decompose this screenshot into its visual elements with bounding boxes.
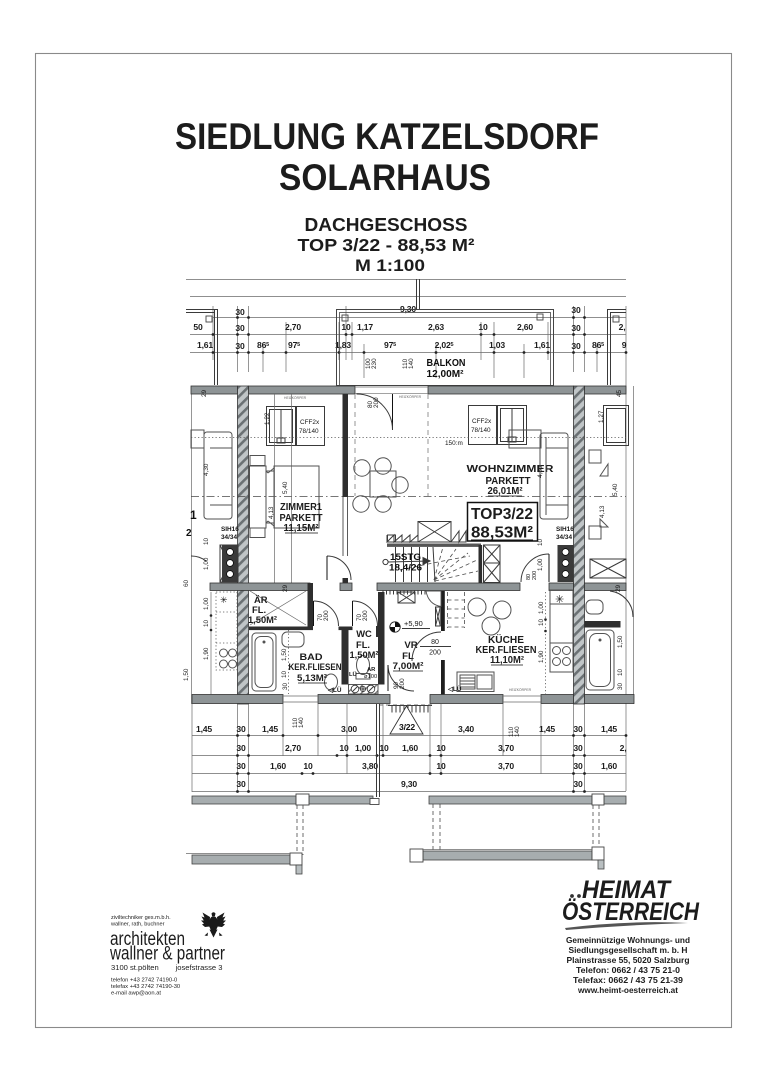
svg-text:HEIZKÖRPER: HEIZKÖRPER — [284, 396, 307, 400]
svg-text:KER.FLIESEN: KER.FLIESEN — [289, 662, 342, 673]
svg-text:Gemeinnützige Wohnungs- und: Gemeinnützige Wohnungs- und — [566, 935, 690, 945]
svg-text:1,03: 1,03 — [489, 340, 505, 350]
svg-text:www.heimt-oesterreich.at: www.heimt-oesterreich.at — [577, 985, 678, 995]
svg-text:e-mail awp@aon.at: e-mail awp@aon.at — [111, 991, 161, 997]
svg-text:10: 10 — [339, 743, 349, 753]
svg-text:1,50: 1,50 — [183, 668, 190, 681]
svg-text:1,90: 1,90 — [538, 650, 545, 663]
svg-text:2,63: 2,63 — [428, 322, 444, 332]
svg-text:2,: 2, — [619, 322, 626, 332]
svg-text:150:m: 150:m — [445, 440, 463, 447]
svg-text:1,00: 1,00 — [537, 558, 544, 571]
svg-text:wallner & partner: wallner & partner — [109, 944, 225, 965]
svg-text:3100 st.pölten josefst: 3100 st.pölten josefstrasse 3 — [111, 963, 222, 972]
svg-text:30: 30 — [235, 323, 245, 333]
svg-text:2,60: 2,60 — [517, 322, 533, 332]
svg-text:BALKON: BALKON — [427, 358, 466, 369]
svg-text:78/140: 78/140 — [471, 427, 491, 434]
svg-text:VR: VR — [404, 640, 417, 651]
svg-text:80: 80 — [431, 639, 439, 646]
svg-text:ÖSTERREICH: ÖSTERREICH — [562, 897, 700, 926]
svg-text:Telefax: 0662 / 43 75 21-39: Telefax: 0662 / 43 75 21-39 — [573, 975, 683, 985]
svg-text:11,10M²: 11,10M² — [490, 655, 525, 666]
svg-text:WC: WC — [356, 628, 372, 639]
svg-text:140: 140 — [514, 726, 521, 737]
svg-text:AR: AR — [367, 667, 376, 673]
svg-text:30: 30 — [617, 682, 624, 690]
svg-text:30: 30 — [571, 305, 581, 315]
svg-text:10: 10 — [436, 743, 446, 753]
svg-text:HEIZKÖRPER: HEIZKÖRPER — [509, 688, 532, 692]
svg-text:3,70: 3,70 — [498, 743, 514, 753]
svg-text:ø100: ø100 — [364, 674, 377, 680]
svg-text:4,30: 4,30 — [537, 465, 544, 478]
svg-text:3,80: 3,80 — [362, 761, 378, 771]
svg-text:10: 10 — [203, 537, 210, 545]
svg-text:10: 10 — [341, 322, 351, 332]
svg-text:1,17: 1,17 — [357, 322, 373, 332]
svg-text:1,45: 1,45 — [539, 724, 555, 734]
svg-text:4,30: 4,30 — [203, 463, 210, 476]
svg-text:CFF2x: CFF2x — [472, 418, 492, 425]
svg-text:9,30: 9,30 — [401, 779, 417, 789]
svg-text:140: 140 — [298, 717, 305, 728]
svg-text:200: 200 — [429, 650, 441, 657]
svg-text:30: 30 — [282, 682, 289, 690]
svg-text:200: 200 — [373, 397, 380, 408]
svg-text:30: 30 — [571, 341, 581, 351]
svg-text:M 1:100: M 1:100 — [355, 256, 425, 275]
svg-text:7,00M²: 7,00M² — [393, 661, 424, 672]
svg-text:CFF2x: CFF2x — [300, 419, 320, 426]
svg-text:1,50: 1,50 — [617, 635, 624, 648]
svg-text:1,00: 1,00 — [355, 743, 371, 753]
svg-text:1,22: 1,22 — [264, 412, 271, 425]
svg-text:30: 30 — [235, 307, 245, 317]
svg-text:10: 10 — [478, 322, 488, 332]
svg-text:1,50: 1,50 — [281, 648, 288, 661]
svg-text:30: 30 — [573, 743, 583, 753]
svg-text:3,70: 3,70 — [498, 761, 514, 771]
svg-text:2,: 2, — [620, 743, 627, 753]
svg-text:140: 140 — [408, 358, 415, 369]
svg-text:5,40: 5,40 — [282, 481, 289, 494]
svg-text:30: 30 — [571, 323, 581, 333]
svg-text:200: 200 — [362, 610, 369, 621]
svg-text:◁LÜ: ◁LÜ — [447, 684, 462, 693]
svg-text:30: 30 — [573, 761, 583, 771]
svg-text:Siedlungsgesellschaft m. b. H: Siedlungsgesellschaft m. b. H — [569, 945, 688, 955]
svg-text:+5,90: +5,90 — [404, 619, 423, 628]
svg-text:1,60: 1,60 — [601, 761, 617, 771]
svg-text:30: 30 — [573, 779, 583, 789]
svg-text:10: 10 — [538, 618, 545, 626]
svg-text:10: 10 — [379, 743, 389, 753]
svg-text:1,83: 1,83 — [335, 340, 351, 350]
svg-text:10: 10 — [281, 670, 288, 678]
svg-text:2,70: 2,70 — [285, 322, 301, 332]
svg-text:200: 200 — [399, 678, 406, 689]
svg-text:18,4/26: 18,4/26 — [389, 563, 422, 573]
svg-text:34/34: 34/34 — [221, 534, 237, 541]
svg-text:1,90: 1,90 — [203, 647, 210, 660]
svg-text:1,50M²: 1,50M² — [248, 614, 277, 625]
svg-text:29: 29 — [201, 389, 208, 397]
svg-text:4,13: 4,13 — [599, 505, 606, 518]
svg-text:3/22: 3/22 — [399, 722, 415, 732]
svg-text:TOP3/22: TOP3/22 — [471, 506, 533, 523]
svg-text:30: 30 — [236, 743, 246, 753]
svg-text:9: 9 — [622, 340, 627, 350]
svg-text:50: 50 — [193, 322, 203, 332]
svg-text:1,60: 1,60 — [270, 761, 286, 771]
svg-text:10: 10 — [303, 761, 313, 771]
svg-text:5,40: 5,40 — [612, 483, 619, 496]
svg-text:DACHGESCHOSS: DACHGESCHOSS — [305, 214, 468, 235]
svg-text:15STG: 15STG — [390, 552, 421, 562]
svg-text:SOLARHAUS: SOLARHAUS — [279, 157, 491, 198]
svg-text:SIH16: SIH16 — [556, 526, 574, 533]
svg-text:wallner, rath, buchner: wallner, rath, buchner — [110, 922, 165, 928]
svg-text:1,00: 1,00 — [538, 601, 545, 614]
svg-text:SIEDLUNG KATZELSDORF: SIEDLUNG KATZELSDORF — [175, 116, 599, 157]
svg-text:30: 30 — [235, 341, 245, 351]
svg-text:◁LÜ: ◁LÜ — [327, 685, 342, 694]
svg-text:26,01M²: 26,01M² — [488, 486, 524, 497]
svg-text:30: 30 — [236, 724, 246, 734]
svg-text:telefon +43 2742 74190-0: telefon +43 2742 74190-0 — [111, 978, 177, 984]
svg-text:1,00: 1,00 — [203, 597, 210, 610]
svg-text:ziviltechniker ges.m.b.h.: ziviltechniker ges.m.b.h. — [111, 915, 171, 921]
svg-text:1,45: 1,45 — [196, 724, 212, 734]
svg-text:12,00M²: 12,00M² — [427, 369, 465, 380]
svg-text:1,60: 1,60 — [402, 743, 418, 753]
svg-text:Plainstrasse 55, 5020 Salzburg: Plainstrasse 55, 5020 Salzburg — [567, 955, 690, 965]
svg-text:3,00: 3,00 — [341, 724, 357, 734]
svg-text:2: 2 — [186, 528, 192, 539]
svg-text:1,27: 1,27 — [598, 410, 605, 423]
svg-text:88,53M²: 88,53M² — [471, 525, 533, 542]
svg-text:Telefon: 0662 / 43 75 21-0: Telefon: 0662 / 43 75 21-0 — [576, 965, 680, 975]
svg-text:1,45: 1,45 — [262, 724, 278, 734]
svg-text:34/34: 34/34 — [556, 534, 572, 541]
svg-text:5,13M²: 5,13M² — [297, 673, 327, 684]
svg-text:SIH16: SIH16 — [221, 526, 239, 533]
svg-text:78/140: 78/140 — [299, 428, 319, 435]
svg-text:ZIMMER1: ZIMMER1 — [280, 502, 322, 513]
svg-text:30: 30 — [236, 761, 246, 771]
svg-text:230: 230 — [371, 358, 378, 369]
svg-text:30: 30 — [573, 724, 583, 734]
svg-text:29: 29 — [615, 584, 622, 592]
svg-text:1: 1 — [190, 508, 197, 522]
svg-text:1,61: 1,61 — [534, 340, 550, 350]
svg-text:TOP 3/22 - 88,53 M²: TOP 3/22 - 88,53 M² — [298, 235, 475, 255]
svg-text:10: 10 — [617, 668, 624, 676]
svg-text:1,45: 1,45 — [601, 724, 617, 734]
svg-text:telefax +43 2742 74190-30: telefax +43 2742 74190-30 — [111, 984, 180, 990]
svg-text:✳: ✳ — [555, 594, 564, 606]
svg-text:1,00: 1,00 — [203, 557, 210, 570]
svg-text:10: 10 — [537, 538, 544, 546]
svg-text:30: 30 — [236, 779, 246, 789]
svg-text:3,40: 3,40 — [458, 724, 474, 734]
svg-text:60: 60 — [183, 579, 190, 587]
svg-text:4,13: 4,13 — [268, 506, 275, 519]
svg-text:11,15M²: 11,15M² — [284, 523, 320, 534]
svg-text:200: 200 — [532, 571, 538, 580]
svg-text:45: 45 — [616, 389, 623, 397]
svg-text:✳: ✳ — [220, 595, 228, 605]
svg-text:10: 10 — [436, 761, 446, 771]
svg-text:10: 10 — [203, 619, 210, 627]
svg-text:LÜ: LÜ — [349, 671, 357, 678]
svg-text:1,61: 1,61 — [197, 340, 213, 350]
svg-text:1,50M²: 1,50M² — [350, 649, 379, 660]
svg-text:29: 29 — [282, 584, 289, 592]
svg-text:2,70: 2,70 — [285, 743, 301, 753]
svg-text:200: 200 — [323, 610, 330, 621]
svg-text:HEIZKÖRPER: HEIZKÖRPER — [399, 395, 422, 399]
